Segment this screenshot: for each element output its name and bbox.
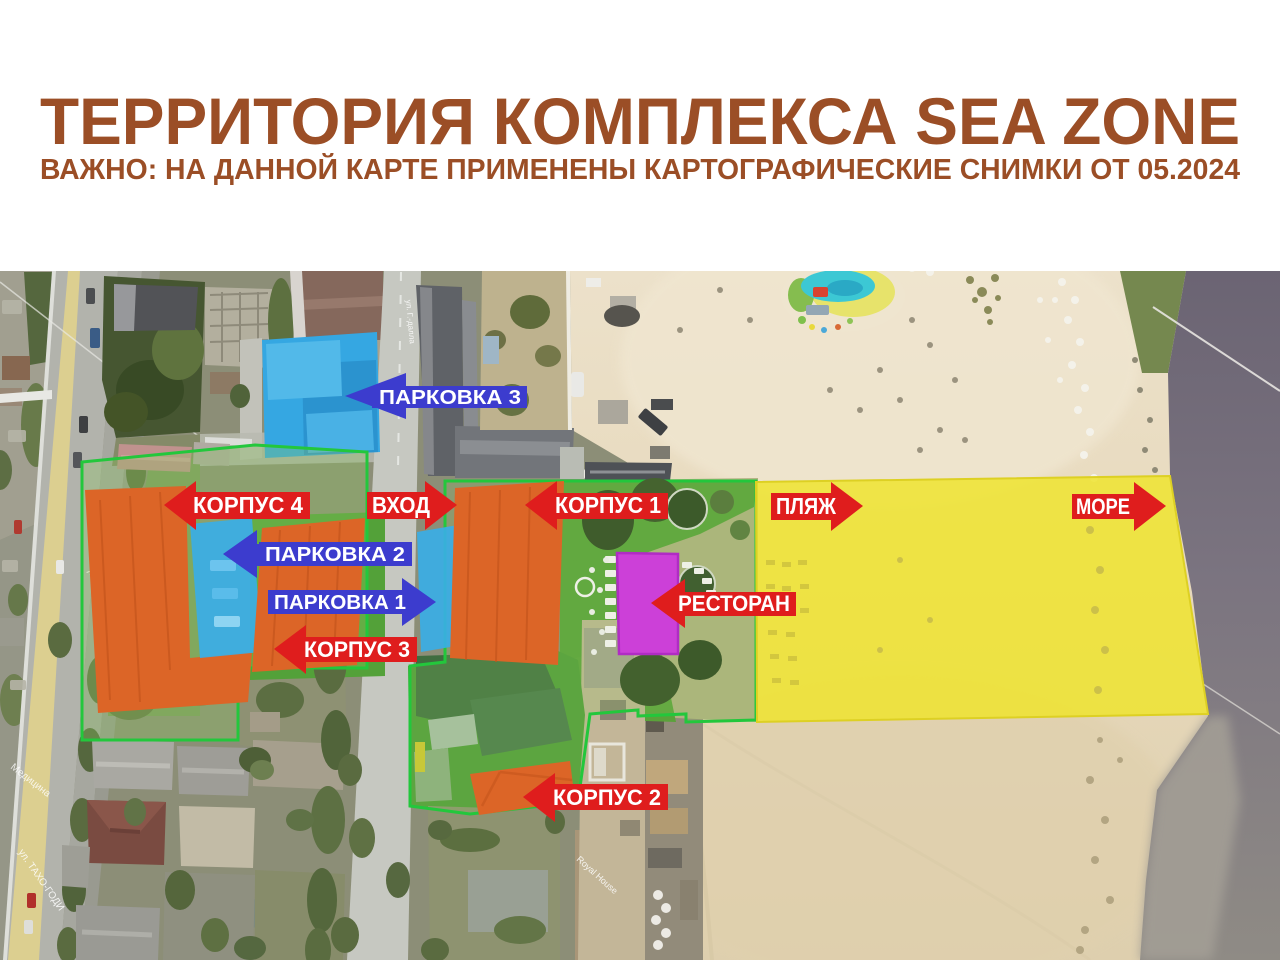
svg-text:ПАРКОВКА 2: ПАРКОВКА 2 [265,544,405,566]
svg-text:ПАРКОВКА 3: ПАРКОВКА 3 [379,387,521,409]
svg-text:МОРЕ: МОРЕ [1076,494,1130,519]
svg-text:КОРПУС 4: КОРПУС 4 [193,492,303,518]
svg-text:ПЛЯЖ: ПЛЯЖ [776,493,836,519]
svg-text:КОРПУС 1: КОРПУС 1 [555,492,661,518]
svg-text:КОРПУС 2: КОРПУС 2 [553,785,661,810]
svg-text:ВХОД: ВХОД [372,492,430,518]
svg-text:ВАЖНО: НА ДАННОЙ КАРТЕ ПРИМЕНЕ: ВАЖНО: НА ДАННОЙ КАРТЕ ПРИМЕНЕНЫ КАРТОГР… [40,152,1240,186]
svg-text:РЕСТОРАН: РЕСТОРАН [678,591,790,616]
svg-text:КОРПУС 3: КОРПУС 3 [304,637,410,662]
svg-text:ТЕРРИТОРИЯ КОМПЛЕКСА SEA ZONE: ТЕРРИТОРИЯ КОМПЛЕКСА SEA ZONE [40,84,1240,158]
svg-text:ПАРКОВКА 1: ПАРКОВКА 1 [274,592,406,614]
